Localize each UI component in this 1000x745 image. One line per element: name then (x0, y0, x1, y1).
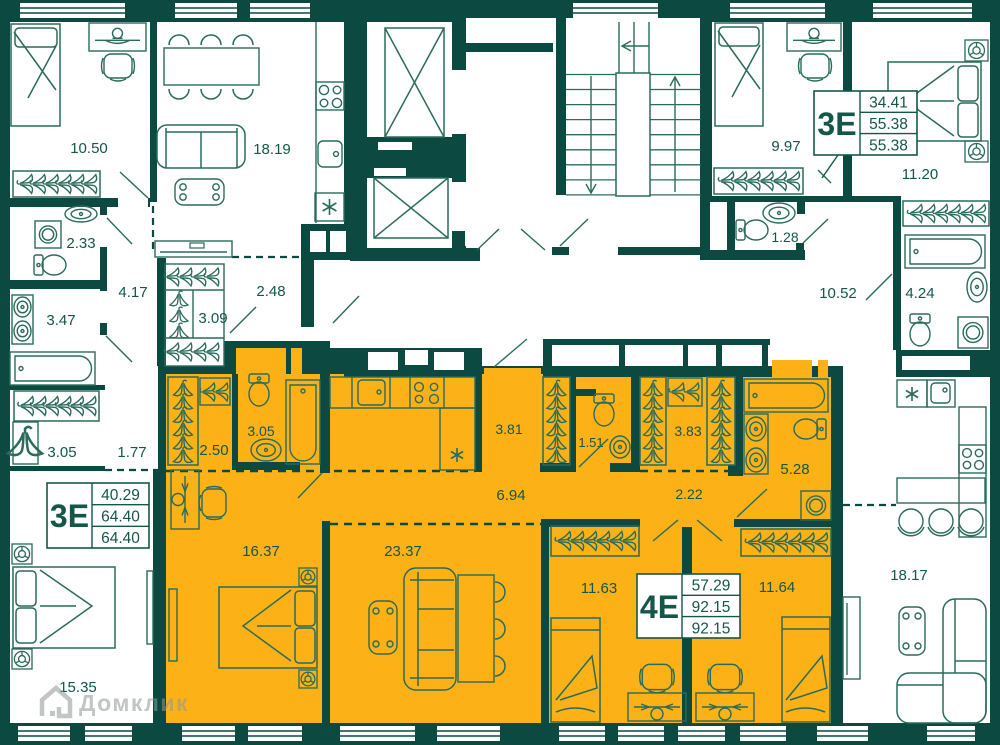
svg-text:Домклик: Домклик (79, 690, 189, 716)
svg-text:3E: 3E (817, 106, 856, 142)
svg-text:2.48: 2.48 (256, 283, 285, 300)
svg-text:3.47: 3.47 (46, 312, 75, 329)
svg-text:2.50: 2.50 (199, 442, 228, 459)
svg-text:1.77: 1.77 (117, 444, 146, 461)
svg-text:64.40: 64.40 (101, 530, 140, 547)
svg-text:11.63: 11.63 (581, 580, 617, 597)
svg-text:10.52: 10.52 (819, 285, 857, 302)
svg-text:92.15: 92.15 (692, 599, 731, 616)
svg-text:3.09: 3.09 (198, 310, 227, 327)
svg-text:40.29: 40.29 (101, 487, 140, 504)
svg-text:3.05: 3.05 (47, 444, 76, 461)
svg-text:3E: 3E (50, 498, 89, 534)
svg-text:6.94: 6.94 (496, 487, 525, 504)
svg-text:4.17: 4.17 (118, 284, 147, 301)
svg-text:23.37: 23.37 (384, 543, 422, 560)
svg-text:18.19: 18.19 (253, 141, 291, 158)
svg-text:16.37: 16.37 (242, 543, 280, 560)
svg-text:92.15: 92.15 (692, 621, 731, 638)
svg-text:1.28: 1.28 (771, 229, 798, 245)
svg-text:34.41: 34.41 (869, 95, 908, 112)
svg-text:11.20: 11.20 (902, 166, 938, 183)
svg-text:3.81: 3.81 (495, 421, 522, 437)
svg-text:4E: 4E (640, 589, 679, 625)
svg-text:5.28: 5.28 (780, 461, 809, 478)
svg-text:11.64: 11.64 (759, 579, 795, 596)
svg-text:3.05: 3.05 (247, 423, 274, 439)
svg-text:2.33: 2.33 (66, 235, 95, 252)
svg-text:64.40: 64.40 (101, 509, 140, 526)
svg-text:18.17: 18.17 (890, 567, 928, 584)
svg-text:2.22: 2.22 (675, 486, 702, 502)
svg-text:55.38: 55.38 (869, 116, 908, 133)
svg-text:9.97: 9.97 (771, 138, 800, 155)
svg-text:4.24: 4.24 (905, 285, 934, 302)
svg-text:57.29: 57.29 (692, 578, 731, 595)
svg-text:10.50: 10.50 (70, 140, 108, 157)
svg-text:3.83: 3.83 (674, 423, 701, 439)
svg-text:55.38: 55.38 (869, 138, 908, 155)
